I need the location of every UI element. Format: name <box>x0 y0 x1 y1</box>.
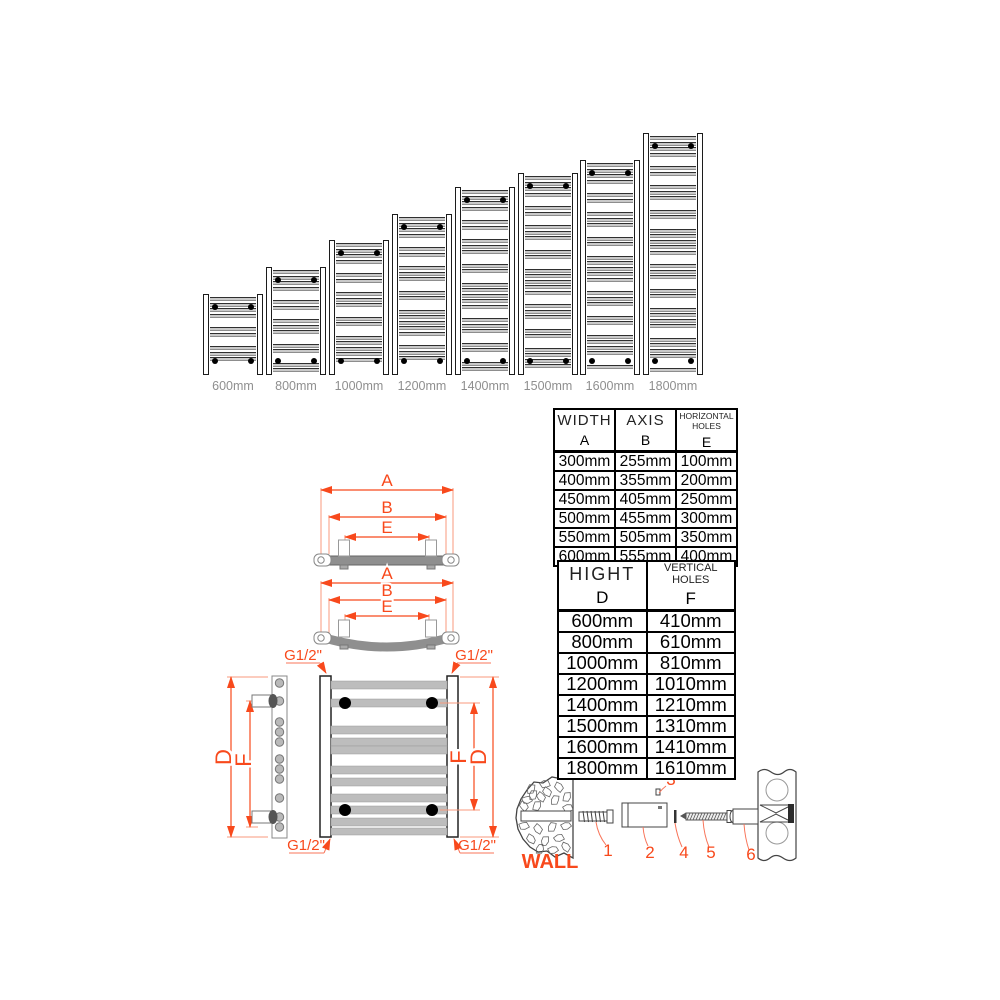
clamp <box>760 805 792 813</box>
front-bar <box>331 778 447 786</box>
rock <box>552 796 559 805</box>
radiator-bar <box>462 264 508 268</box>
radiator-bar <box>462 324 508 328</box>
radiator-bar <box>650 313 696 317</box>
radiator-bars <box>462 190 508 372</box>
radiator-bar <box>462 348 508 352</box>
radiator-bar <box>336 303 382 307</box>
radiator-bar <box>525 206 571 210</box>
radiator-bar <box>650 308 696 312</box>
radiator-bars <box>273 270 319 372</box>
radiator-bar <box>462 245 508 249</box>
radiator-bars <box>525 176 571 372</box>
mount-dot <box>527 358 533 364</box>
radiator-1200mm <box>392 214 452 375</box>
mount-dot <box>652 358 658 364</box>
front-bar <box>331 726 447 734</box>
radiator-bar <box>525 231 571 235</box>
radiator-bar <box>525 269 571 273</box>
end-cap <box>442 554 459 566</box>
rock <box>563 793 570 802</box>
part-number-2: 2 <box>645 843 654 862</box>
radiator-rail <box>383 240 389 375</box>
table-cell: 1800mm <box>558 758 647 779</box>
dim-label-a: A <box>381 564 393 583</box>
radiator-bar <box>650 319 696 323</box>
radiator-800mm <box>266 267 326 375</box>
table-row: 500mm455mm300mm <box>554 509 737 528</box>
radiator-bar <box>273 270 319 274</box>
mount-dot <box>374 250 380 256</box>
radiator-bar <box>462 318 508 322</box>
mount-dot <box>688 143 694 149</box>
front-bar <box>331 699 447 707</box>
wall-texture <box>519 781 573 854</box>
rock <box>563 805 574 812</box>
rock <box>519 822 530 829</box>
rock <box>561 823 572 830</box>
mount-dot <box>248 304 254 310</box>
radiator-bar <box>273 325 319 329</box>
radiator-bar <box>210 327 256 331</box>
mount-dot <box>652 143 658 149</box>
wall-bracket <box>339 620 350 637</box>
table-cell: 1200mm <box>558 674 647 695</box>
technical-drawing: A B E A B E G1/2" <box>0 0 1000 1000</box>
radiator-bar <box>399 253 445 257</box>
radiator-1500mm <box>518 173 578 375</box>
radiator-bar <box>399 332 445 336</box>
screw-threads <box>687 813 726 820</box>
radiator-rail <box>203 294 209 375</box>
front-view-diagram: F D <box>320 676 499 837</box>
column-header: HORİZONTAL HOLESE <box>676 409 737 452</box>
radiator-bar <box>587 272 633 276</box>
radiator-bar <box>650 338 696 342</box>
table-row: 1500mm1310mm <box>558 716 735 737</box>
thread-label: G1/2" <box>284 647 322 664</box>
mount-dot <box>625 170 631 176</box>
mount-dot <box>500 358 506 364</box>
table-cell: 610mm <box>647 632 736 653</box>
radiator-bar <box>336 298 382 302</box>
rock <box>537 792 546 803</box>
wall-bracket <box>339 540 350 556</box>
radiator-bar <box>587 163 633 167</box>
radiator-bar <box>399 291 445 295</box>
mount-dot <box>563 358 569 364</box>
radiator-bar <box>336 341 382 345</box>
radiator-bar <box>525 285 571 289</box>
table-row: 400mm355mm200mm <box>554 471 737 490</box>
table-cell: 405mm <box>615 490 676 509</box>
dim-label-b: B <box>381 581 392 600</box>
rock <box>554 834 565 841</box>
radiator-bar <box>273 349 319 353</box>
bracket-stub <box>252 811 272 823</box>
table-row: 600mm410mm <box>558 611 735 633</box>
dim-label-e: E <box>381 597 392 616</box>
radiator-bar <box>462 269 508 273</box>
wall-bracket <box>426 620 437 637</box>
radiator-bar <box>462 305 508 309</box>
radiator-rail <box>643 133 649 375</box>
dim-label-d: D <box>466 749 491 765</box>
table-row: 1200mm1010mm <box>558 674 735 695</box>
bracket-rod <box>733 809 758 824</box>
size-table: WIDTHAAXISBHORİZONTAL HOLESE300mm255mm10… <box>553 408 738 567</box>
radiator-bar <box>462 250 508 254</box>
thread-callouts: G1/2" G1/2" G1/2" G1/2" <box>284 647 496 854</box>
mount-dot <box>212 358 218 364</box>
radiator-600mm <box>203 294 263 375</box>
radiator-bar <box>650 264 696 268</box>
mount-dot <box>437 358 443 364</box>
radiator-bars <box>650 136 696 372</box>
wall-bracket <box>426 540 437 556</box>
radiator-bar <box>336 317 382 321</box>
rock <box>536 844 543 853</box>
mount-dot <box>212 304 218 310</box>
screw-shaft <box>686 813 727 820</box>
side-view-diagram: D F <box>211 676 287 838</box>
radiator-bar <box>525 193 571 197</box>
rock <box>533 802 541 811</box>
tube-end <box>275 728 283 736</box>
topview-curved-diagram: A B E <box>314 564 459 649</box>
radiator-bar <box>587 212 633 216</box>
mount-dot <box>311 358 317 364</box>
tube-end <box>275 697 283 705</box>
radiator-bar <box>210 297 256 301</box>
radiator-rail <box>455 187 461 375</box>
radiator-bar <box>650 275 696 279</box>
radiator-bars <box>399 217 445 372</box>
front-bar <box>331 738 447 746</box>
radiator-bar <box>399 351 445 355</box>
radiator-bar <box>650 324 696 328</box>
height-table: HIGHTDVERTICAL HOLESF600mm410mm800mm610m… <box>557 560 736 780</box>
radiator-bar <box>462 367 508 371</box>
radiator-bar <box>525 291 571 295</box>
rail-side-profile <box>272 676 287 838</box>
radiator-bar <box>650 210 696 214</box>
radiator-rail <box>320 267 326 375</box>
radiator-bar <box>399 266 445 270</box>
end-cap <box>314 554 331 566</box>
radiator-bar <box>525 236 571 240</box>
tube-end <box>275 823 283 831</box>
mount-dot <box>589 170 595 176</box>
part-number-4: 4 <box>679 843 688 862</box>
radiator-bar <box>462 283 508 287</box>
bracket-sleeve <box>622 803 667 827</box>
wall-section <box>516 775 573 858</box>
part-number-5: 5 <box>706 843 715 862</box>
radiator-1800mm <box>643 133 703 375</box>
bracket-stub <box>252 695 272 707</box>
mount-dot <box>688 358 694 364</box>
mount-dot <box>426 697 438 709</box>
radiator-bar <box>273 306 319 310</box>
radiator-bar <box>399 315 445 319</box>
front-bar <box>331 766 447 774</box>
column-header: AXISB <box>615 409 676 452</box>
radiator-bar <box>273 300 319 304</box>
radiator-bar <box>273 319 319 323</box>
mount-dot <box>248 358 254 364</box>
front-bar <box>331 746 447 754</box>
radiator-size-label: 1800mm <box>635 379 711 393</box>
rock <box>520 801 529 812</box>
rock <box>530 791 537 800</box>
radiator-bar <box>587 199 633 203</box>
mount-dot <box>464 197 470 203</box>
table-row: 550mm505mm350mm <box>554 528 737 547</box>
radiator-bar <box>650 270 696 274</box>
rock <box>542 837 549 846</box>
radiator-bar <box>399 326 445 330</box>
plug-ribs <box>583 811 605 822</box>
tube-ends <box>275 679 283 831</box>
table-cell: 455mm <box>615 509 676 528</box>
table-row: 1400mm1210mm <box>558 695 735 716</box>
table-cell: 1010mm <box>647 674 736 695</box>
radiator-bar <box>650 240 696 244</box>
screw-tip <box>680 813 686 820</box>
radiator-bar <box>525 250 571 254</box>
mount-dot <box>275 277 281 283</box>
radiator-bar <box>462 239 508 243</box>
radiator-bar <box>587 351 633 355</box>
radiator-bar <box>336 336 382 340</box>
radiator-rail <box>697 133 703 375</box>
radiator-bar <box>525 274 571 278</box>
table-cell: 355mm <box>615 471 676 490</box>
tube-end <box>275 755 283 763</box>
radiator-bar <box>525 364 571 368</box>
radiator-bar <box>462 220 508 224</box>
radiator-bar <box>587 278 633 282</box>
mount-dot <box>275 358 281 364</box>
mount-dot <box>426 804 438 816</box>
radiator-bar <box>525 225 571 229</box>
radiator-bar <box>462 299 508 303</box>
radiator-rail <box>580 160 586 375</box>
radiator-bar <box>587 321 633 325</box>
tube-end <box>275 718 283 726</box>
radiator-bar <box>210 352 256 356</box>
radiator-bar <box>650 196 696 200</box>
radiator-rail <box>266 267 272 375</box>
radiator-bar <box>650 136 696 140</box>
radiator-tube-topview <box>325 556 448 565</box>
tube-end <box>275 775 283 783</box>
radiator-bar <box>336 279 382 283</box>
tube-end <box>275 765 283 773</box>
radiator-bar <box>587 193 633 197</box>
radiator-rail <box>257 294 263 375</box>
radiator-bar <box>650 185 696 189</box>
front-bar <box>331 794 447 802</box>
radiator-bar <box>587 302 633 306</box>
radiator-bar <box>650 368 696 372</box>
radiator-bar <box>336 292 382 296</box>
radiator-bar <box>650 166 696 170</box>
tube-end <box>275 738 283 746</box>
table-cell: 350mm <box>676 528 737 547</box>
mount-dot <box>563 183 569 189</box>
radiator-bar <box>587 256 633 260</box>
radiator-bar <box>587 261 633 265</box>
radiator-bar <box>399 296 445 300</box>
front-bar <box>331 681 447 689</box>
radiator-bar <box>399 321 445 325</box>
radiator-bar <box>399 310 445 314</box>
radiator-bar <box>336 243 382 247</box>
radiator-bar <box>462 294 508 298</box>
radiator-bar <box>650 245 696 249</box>
radiator-bar <box>462 288 508 292</box>
radiator-bar <box>587 237 633 241</box>
tube-section <box>766 779 788 801</box>
radiator-rail <box>518 173 524 375</box>
radiator-bar <box>650 172 696 176</box>
table-cell: 200mm <box>676 471 737 490</box>
radiator-bar <box>587 267 633 271</box>
front-bar <box>331 828 447 835</box>
radiator-bars <box>587 163 633 372</box>
table-row: 1800mm1610mm <box>558 758 735 779</box>
mount-dot <box>625 358 631 364</box>
radiator-bar <box>650 251 696 255</box>
table-cell: 1500mm <box>558 716 647 737</box>
thread-label: G1/2" <box>287 837 325 854</box>
mount-dot <box>374 358 380 364</box>
table-cell: 550mm <box>554 528 615 547</box>
radiator-bars <box>336 243 382 372</box>
tube-section <box>766 822 788 844</box>
curved-tube-topview <box>325 638 448 647</box>
mount-dot <box>401 224 407 230</box>
rail-cutaway <box>758 770 796 861</box>
radiator-rail <box>572 173 578 375</box>
table-cell: 300mm <box>676 509 737 528</box>
dim-label-f: F <box>231 753 256 766</box>
rock <box>543 787 552 797</box>
table-row: 450mm405mm250mm <box>554 490 737 509</box>
tube-end <box>275 794 283 802</box>
radiator-bar <box>399 217 445 221</box>
rock <box>540 781 551 788</box>
radiator-bar <box>525 176 571 180</box>
radiator-spec-sheet: A B E A B E G1/2" <box>0 0 1000 1000</box>
mount-dot <box>589 358 595 364</box>
radiator-rail <box>329 240 335 375</box>
table-cell: 1410mm <box>647 737 736 758</box>
table-cell: 300mm <box>554 452 615 472</box>
radiator-bar <box>462 329 508 333</box>
mount-dot <box>464 358 470 364</box>
radiator-1400mm <box>455 187 515 375</box>
table-cell: 505mm <box>615 528 676 547</box>
radiator-bar <box>650 289 696 293</box>
radiator-bar <box>399 345 445 349</box>
radiator-bar <box>587 340 633 344</box>
grub-screw <box>656 789 660 795</box>
radiator-bar <box>525 280 571 284</box>
radiator-bar <box>525 255 571 259</box>
radiator-bar <box>525 329 571 333</box>
dim-label-a: A <box>381 471 393 490</box>
mount-dot <box>527 183 533 189</box>
radiator-bar <box>650 229 696 233</box>
mount-dot <box>500 197 506 203</box>
table-row: 1600mm1410mm <box>558 737 735 758</box>
radiator-bar <box>587 365 633 369</box>
table-cell: 100mm <box>676 452 737 472</box>
radiator-bar <box>399 247 445 251</box>
thread-label: G1/2" <box>458 837 496 854</box>
rock <box>522 796 533 803</box>
radiator-bar <box>587 291 633 295</box>
radiator-bar <box>650 153 696 157</box>
table-cell: 1000mm <box>558 653 647 674</box>
clamp <box>760 814 792 822</box>
radiator-bar <box>273 368 319 372</box>
tube-end <box>275 679 283 687</box>
radiator-bar <box>525 212 571 216</box>
radiator-bar <box>273 287 319 291</box>
thread-label: G1/2" <box>455 647 493 664</box>
drill-hole <box>521 811 571 821</box>
table-cell: 255mm <box>615 452 676 472</box>
rock <box>562 842 571 852</box>
radiator-bar <box>336 347 382 351</box>
radiator-bar <box>587 223 633 227</box>
radiator-bar <box>336 273 382 277</box>
rock <box>549 823 557 832</box>
wall-fixing-diagram: WALL 1 2 3 4 5 6 <box>516 770 796 874</box>
table-row: 800mm610mm <box>558 632 735 653</box>
table-cell: 400mm <box>554 471 615 490</box>
vertical-rail <box>320 676 331 837</box>
radiator-bar <box>462 190 508 194</box>
radiator-bar <box>273 344 319 348</box>
table-cell: 1310mm <box>647 716 736 737</box>
radiator-bar <box>210 333 256 337</box>
table-cell: 410mm <box>647 611 736 633</box>
radiator-bar <box>336 260 382 264</box>
radiator-bar <box>525 304 571 308</box>
rock <box>527 834 536 844</box>
radiator-bar <box>462 226 508 230</box>
mount-dot <box>339 804 351 816</box>
mount-dot <box>437 224 443 230</box>
radiator-bar <box>650 191 696 195</box>
radiator-bar <box>587 297 633 301</box>
radiator-rail <box>446 214 452 375</box>
radiator-bar <box>399 272 445 276</box>
table-row: 300mm255mm100mm <box>554 452 737 472</box>
radiator-bar <box>399 277 445 281</box>
table-cell: 500mm <box>554 509 615 528</box>
part-number-1: 1 <box>603 841 612 860</box>
dim-label-e: E <box>381 518 392 537</box>
radiator-rail <box>392 214 398 375</box>
table-cell: 600mm <box>558 611 647 633</box>
table-cell: 1210mm <box>647 695 736 716</box>
